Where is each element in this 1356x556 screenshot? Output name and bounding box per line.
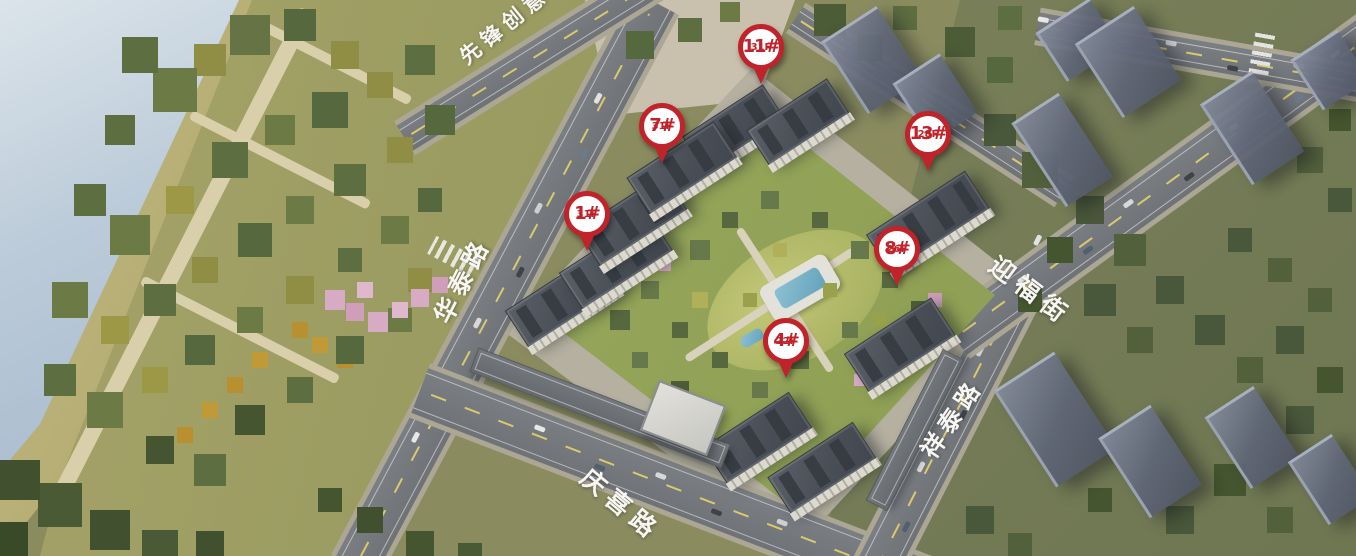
- pin-circle: 4# 22F: [763, 318, 809, 364]
- aerial-masterplan-map: 先锋创意 华泰路 庆喜路 祥泰路 迎福街 1# 31F 7# 31F 11# 3…: [0, 0, 1356, 556]
- pin-floor-count: 31F: [751, 43, 772, 53]
- pin-floor-count: 28F: [918, 130, 939, 140]
- building-pin-13[interactable]: 13# 28F: [905, 111, 951, 177]
- pin-floor-count: 31F: [652, 122, 673, 132]
- building-pin-7[interactable]: 7# 31F: [639, 103, 685, 169]
- pin-floor-count: 26F: [887, 245, 908, 255]
- pin-circle: 11# 31F: [738, 24, 784, 70]
- pin-circle: 1# 31F: [564, 191, 610, 237]
- building-pin-1[interactable]: 1# 31F: [564, 191, 610, 257]
- pin-circle: 8# 26F: [874, 226, 920, 272]
- pin-circle: 7# 31F: [639, 103, 685, 149]
- pin-floor-count: 31F: [577, 210, 598, 220]
- cars-west: [488, 303, 498, 315]
- pin-floor-count: 22F: [776, 337, 797, 347]
- pin-circle: 13# 28F: [905, 111, 951, 157]
- cars-east: [1143, 192, 1155, 203]
- building-pin-8[interactable]: 8# 26F: [874, 226, 920, 292]
- cars-south: [671, 485, 683, 494]
- building-pin-11[interactable]: 11# 31F: [738, 24, 784, 90]
- building-pin-4[interactable]: 4# 22F: [763, 318, 809, 384]
- cars-topright: [1183, 50, 1195, 57]
